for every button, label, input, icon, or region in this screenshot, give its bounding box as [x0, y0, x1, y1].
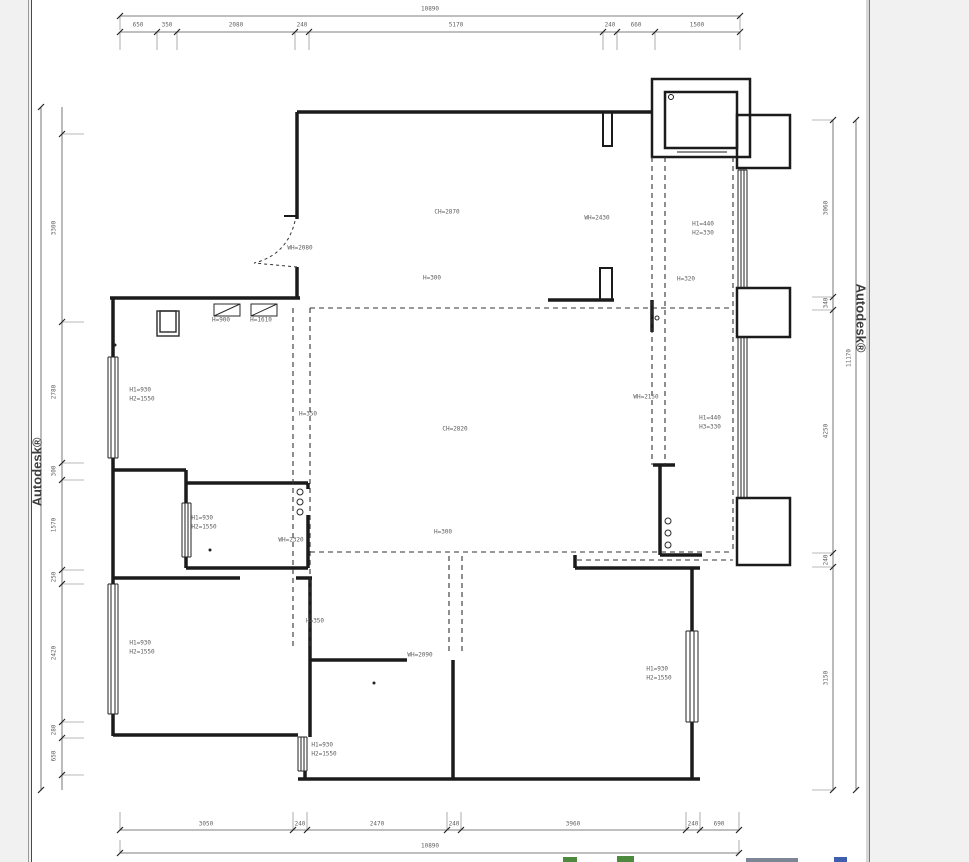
drop-height-label: H=320: [677, 274, 695, 283]
window-height-pair-label: H1=930 H2=1550: [311, 741, 336, 760]
wall-height-label: WH=2080: [287, 243, 312, 252]
dim-bottom-seg: 240: [295, 821, 306, 828]
dim-left-seg: 650: [51, 751, 58, 762]
dim-left-seg: 1570: [51, 518, 58, 532]
partial-title-fragment: [563, 857, 577, 862]
dim-top-seg: 240: [297, 22, 308, 29]
wall-height-label: WH=2320: [278, 535, 303, 544]
dim-bottom-seg: 3960: [566, 821, 580, 828]
window-height-pair-label: H1=930 H2=1550: [129, 639, 154, 658]
dimension-lines-left: [38, 104, 84, 793]
window-height-pair-label: H1=930 H2=1550: [646, 665, 671, 684]
dim-left-seg: 3300: [51, 221, 58, 235]
autodesk-watermark-left: Autodesk®: [30, 438, 45, 507]
elevator-shaft: [652, 79, 750, 157]
wall-stubs-layer: [284, 112, 612, 300]
ceiling-height-label: CH=2870: [434, 207, 459, 216]
dim-top-seg: 240: [605, 22, 616, 29]
partial-title-fragment: [834, 857, 847, 862]
height-pair-label: H1=440 H2=330: [692, 220, 714, 239]
window-height-pair-label: H1=930 H2=1550: [129, 386, 154, 405]
dim-left-seg: 300: [51, 466, 58, 477]
sill-height-label: H=1610: [250, 315, 272, 324]
drop-height-label: H=300: [434, 527, 452, 536]
dim-bottom-seg: 3050: [199, 821, 213, 828]
ceiling-dashed-layer: [293, 157, 733, 652]
dim-top-seg: 350: [162, 22, 173, 29]
dim-top-seg: 650: [133, 22, 144, 29]
partial-title-fragment: [617, 856, 634, 862]
partial-title-fragment: [746, 858, 798, 862]
dim-right-seg: 340: [823, 298, 830, 309]
ceiling-height-label: CH=2820: [442, 424, 467, 433]
drop-height-label: H=300: [423, 273, 441, 282]
sill-height-label: H=900: [212, 315, 230, 324]
wall-height-label: WH=2430: [584, 213, 609, 222]
dim-top-seg: 5170: [449, 22, 463, 29]
dim-bottom-total: 10890: [421, 843, 439, 850]
dim-right-total: 11170: [846, 349, 853, 367]
door-track-circles: [297, 316, 671, 548]
dim-right-seg: 3150: [823, 671, 830, 685]
drop-height-label: H=350: [299, 409, 317, 418]
dimension-lines-right: [812, 117, 859, 793]
elevator-door: [669, 95, 728, 153]
dim-top-total: 10890: [421, 6, 439, 13]
dim-left-seg: 2420: [51, 646, 58, 660]
dim-right-seg: 3060: [823, 201, 830, 215]
dim-bottom-seg: 240: [688, 821, 699, 828]
dim-top-seg: 660: [631, 22, 642, 29]
autodesk-watermark-right: Autodesk®: [854, 284, 869, 353]
dim-left-seg: 2780: [51, 385, 58, 399]
dim-bottom-seg: 2470: [370, 821, 384, 828]
vent-symbols: [214, 304, 277, 316]
dim-left-seg: 280: [51, 725, 58, 736]
dim-top-seg: 2080: [229, 22, 243, 29]
wall-niche: [157, 311, 179, 336]
dim-bottom-seg: 240: [449, 821, 460, 828]
walls-layer: [110, 112, 702, 779]
dim-right-seg: 4250: [823, 424, 830, 438]
window-height-pair-label: H1=930 H2=1550: [191, 514, 216, 533]
height-pair-label: H1=440 H3=330: [699, 414, 721, 433]
dim-right-seg: 240: [823, 555, 830, 566]
drop-height-label: H=350: [306, 616, 324, 625]
wall-height-label: WH=2150: [633, 392, 658, 401]
dim-top-seg: 1500: [690, 22, 704, 29]
wall-height-label: WH=2090: [407, 650, 432, 659]
dimension-lines-top: [117, 13, 743, 50]
dim-left-seg: 250: [51, 572, 58, 583]
cad-viewport: { "app": { "watermark": "Autodesk®" }, "…: [0, 0, 969, 862]
dim-bottom-seg: 690: [714, 821, 725, 828]
